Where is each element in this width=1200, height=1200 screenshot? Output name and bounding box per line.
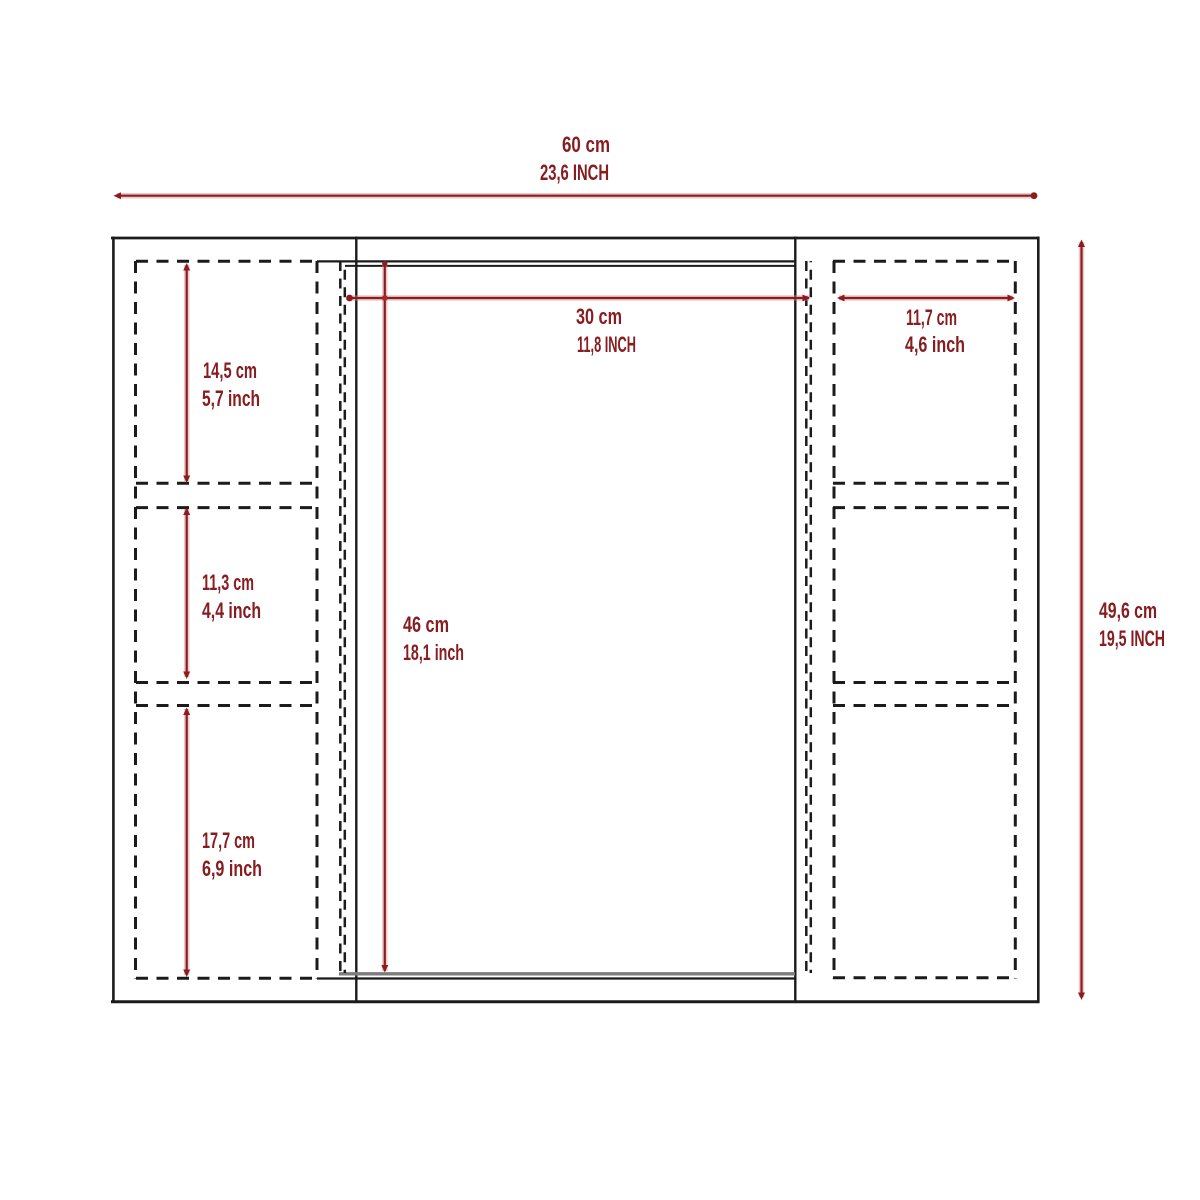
svg-text:11,3 cm: 11,3 cm bbox=[202, 570, 254, 595]
svg-text:11,7 cm: 11,7 cm bbox=[906, 305, 957, 330]
svg-text:23,6 INCH: 23,6 INCH bbox=[540, 160, 609, 185]
svg-text:14,5 cm: 14,5 cm bbox=[203, 358, 257, 383]
svg-text:49,6 cm: 49,6 cm bbox=[1099, 598, 1157, 623]
svg-text:5,7 inch: 5,7 inch bbox=[202, 386, 260, 411]
svg-text:17,7 cm: 17,7 cm bbox=[202, 828, 255, 853]
svg-text:4,6 inch: 4,6 inch bbox=[905, 332, 965, 357]
svg-text:60 cm: 60 cm bbox=[562, 132, 610, 157]
svg-text:18,1 inch: 18,1 inch bbox=[403, 640, 464, 665]
svg-text:46 cm: 46 cm bbox=[403, 612, 449, 637]
svg-text:11,8 INCH: 11,8 INCH bbox=[577, 332, 636, 357]
svg-text:6,9 inch: 6,9 inch bbox=[202, 856, 262, 881]
svg-text:19,5 INCH: 19,5 INCH bbox=[1099, 626, 1165, 651]
svg-text:4,4 inch: 4,4 inch bbox=[202, 598, 261, 623]
svg-text:30 cm: 30 cm bbox=[576, 304, 622, 329]
